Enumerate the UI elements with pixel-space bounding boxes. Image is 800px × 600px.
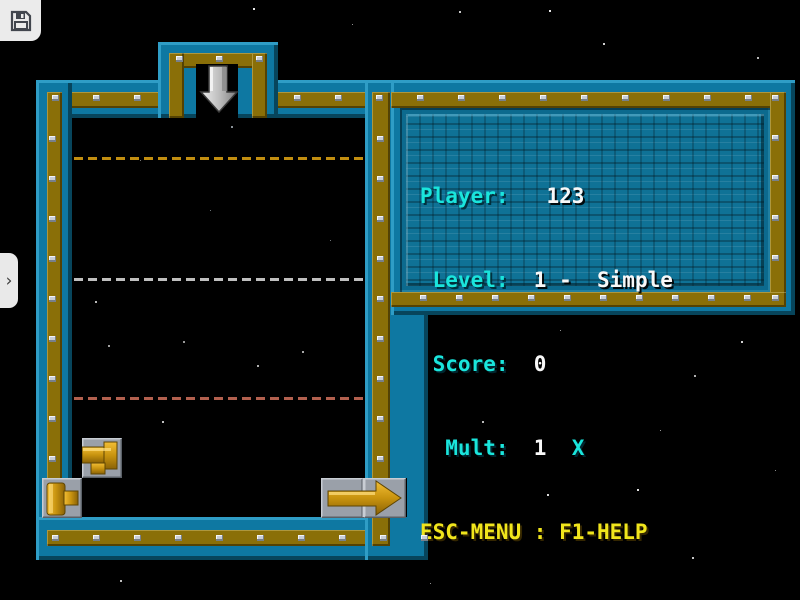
score-value: 0 [509,352,547,376]
rivet [380,535,387,541]
cap-pipe-piece [42,478,82,518]
save-button[interactable] [0,0,41,41]
rivet [704,95,711,101]
star [775,470,776,471]
player-value: 123 [509,184,585,208]
rivet [335,95,342,101]
rivet [745,95,752,101]
rivet [600,295,607,301]
hud-row-mult: Mult: 1 X [420,434,673,462]
rivet [49,216,56,222]
drawer-toggle[interactable]: › [0,253,18,308]
hud-row-level: Level: 1 - Simple [420,266,673,294]
star [694,375,696,377]
rivet [636,295,643,301]
rivet [294,95,301,101]
mult-label: Mult: [420,436,509,460]
wall-band [252,53,267,118]
rivet [744,295,751,301]
star [549,10,551,12]
rivet [421,535,428,541]
rivet [49,256,56,262]
rivet [377,136,384,142]
help-line: ESC-MENU : F1-HELP [420,518,673,546]
rivet [49,136,56,142]
hud-row-player: Player: 123 [420,182,673,210]
star [95,301,97,303]
level-value: 1 - Simple [509,268,673,292]
rivet [52,535,59,541]
rivet [499,95,506,101]
star [162,421,164,423]
star [210,210,211,211]
rivet [49,456,56,462]
rivet [622,95,629,101]
star [120,580,122,582]
star [183,341,185,343]
rivet [377,176,384,182]
rivet [134,535,141,541]
mult-value: 1 [509,436,572,460]
rivet [298,535,305,541]
star [692,557,694,559]
rivet [772,255,779,261]
rivet [581,95,588,101]
rivet [492,295,499,301]
rivet [93,95,100,101]
star [257,365,259,367]
rivet [49,176,56,182]
rivet [216,535,223,541]
mult-suffix: X [572,436,585,460]
rivet [49,336,56,342]
rivet [417,95,424,101]
star [741,341,743,343]
rivet [49,296,56,302]
rivet [93,535,100,541]
star [140,160,141,161]
guide-line [74,278,365,281]
rivet [377,216,384,222]
rivet [420,295,427,301]
star [108,345,110,347]
rivet [257,535,264,541]
star [302,351,304,353]
rivet [49,376,56,382]
panel-texture: Player: 123 Level: 1 - Simple Score: 0 M… [406,114,764,286]
arrow-piece [321,478,406,518]
wall-band [47,530,417,546]
rivet [772,175,779,181]
rivet [564,295,571,301]
rivet [175,535,182,541]
rivet [772,135,779,141]
rivet [376,95,383,101]
hud-row-score: Score: 0 [420,350,673,378]
hud-text: Player: 123 Level: 1 - Simple Score: 0 M… [420,126,673,600]
rivet [772,95,779,101]
player-label: Player: [420,184,509,208]
rivet [377,256,384,262]
info-panel: Player: 123 Level: 1 - Simple Score: 0 M… [391,80,795,315]
wall-band [169,53,184,118]
rivet [176,56,183,62]
star [253,8,255,10]
panel-band-right [770,92,786,307]
star [231,126,233,128]
rivet [339,535,346,541]
star [603,43,605,45]
score-label: Score: [420,352,509,376]
rivet [49,416,56,422]
rivet [52,95,59,101]
rivet [377,296,384,302]
star [330,240,331,241]
rivet [772,295,779,301]
chevron-right-icon: › [6,271,13,291]
rivet [663,95,670,101]
rivet [458,95,465,101]
rivet [772,215,779,221]
game-screen: Player: 123 Level: 1 - Simple Score: 0 M… [0,0,800,600]
floppy-disk-icon [9,9,33,33]
guide-line [74,157,365,160]
panel-interior: Player: 123 Level: 1 - Simple Score: 0 M… [400,108,770,292]
rivet [377,376,384,382]
panel-band-top [391,92,786,108]
star [757,57,759,59]
rivet [456,295,463,301]
rivet [377,416,384,422]
rivet [256,56,263,62]
rivet [528,295,535,301]
rivet [377,336,384,342]
level-label: Level: [420,268,509,292]
rivet [672,295,679,301]
rivet [708,295,715,301]
guide-line [74,397,365,400]
rivet [377,456,384,462]
star [459,11,461,13]
star [352,24,353,25]
tee-pipe-piece [82,438,122,478]
rivet [134,95,141,101]
rivet [540,95,547,101]
down-arrow-icon [197,62,241,116]
